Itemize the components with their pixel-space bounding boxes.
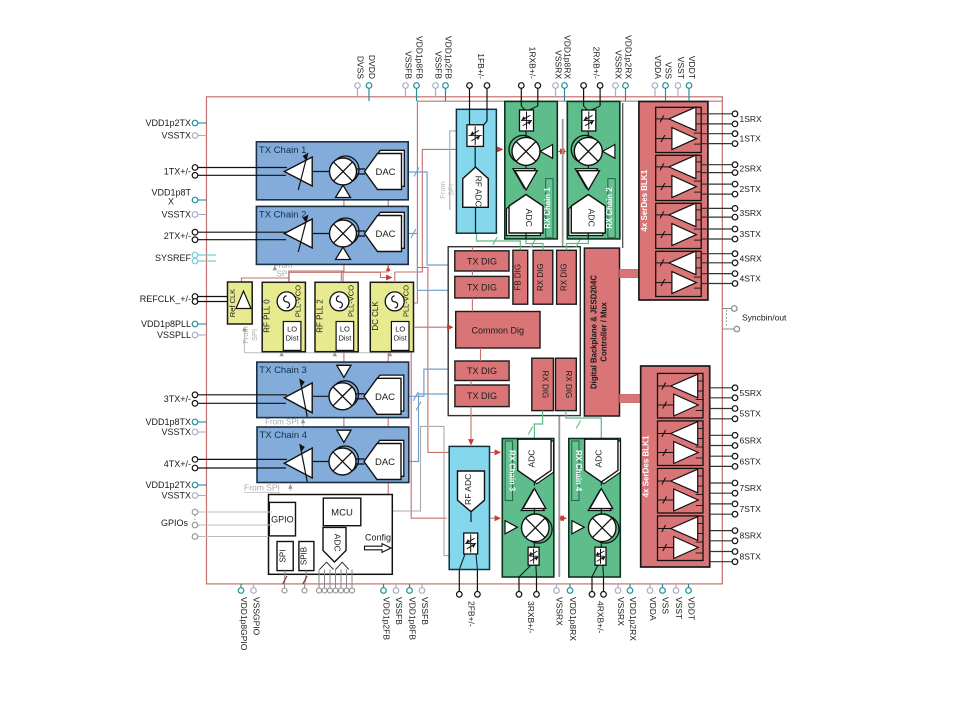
svg-text:1TX+/-: 1TX+/- (164, 167, 191, 177)
svg-text:3TX+/-: 3TX+/- (164, 394, 191, 404)
svg-text:TX Chain 4: TX Chain 4 (260, 430, 308, 441)
svg-text:DVDD: DVDD (367, 55, 377, 79)
svg-text:X: X (168, 197, 174, 207)
svg-text:VDD1p2FB: VDD1p2FB (382, 597, 392, 640)
svg-text:VDD1p8RX: VDD1p8RX (563, 35, 573, 79)
svg-text:3RXB+/-: 3RXB+/- (526, 601, 536, 634)
svg-text:ADC: ADC (586, 209, 596, 227)
svg-text:VSS: VSS (664, 62, 674, 79)
svg-text:RF PLL 0: RF PLL 0 (263, 299, 272, 333)
svg-text:RX DIG: RX DIG (560, 263, 569, 291)
svg-text:VSST: VSST (676, 57, 686, 79)
svg-text:4SRX: 4SRX (740, 253, 763, 263)
svg-text:Syncbin/out: Syncbin/out (742, 313, 787, 323)
svg-text:TX Chain 1: TX Chain 1 (259, 145, 307, 156)
svg-text:5STX: 5STX (740, 409, 762, 419)
svg-text:Config: Config (365, 533, 391, 543)
svg-text:VDD1p8TX: VDD1p8TX (145, 417, 191, 427)
svg-text:DC CLK: DC CLK (371, 301, 380, 331)
svg-text:VSSFB: VSSFB (434, 51, 444, 79)
svg-text:VSS: VSS (661, 597, 671, 614)
svg-text:VDD1p2TX: VDD1p2TX (145, 480, 191, 490)
svg-text:RX DIG: RX DIG (564, 371, 573, 399)
svg-text:SPI: SPI (278, 550, 287, 563)
svg-text:3STX: 3STX (740, 229, 762, 239)
svg-text:VDD1p2TX: VDD1p2TX (145, 118, 191, 128)
svg-text:4RXB+/-: 4RXB+/- (596, 601, 606, 634)
svg-text:VDDA: VDDA (653, 55, 663, 79)
svg-text:TX DIG: TX DIG (467, 366, 497, 376)
svg-text:4STX: 4STX (740, 274, 762, 284)
svg-text:Common Dig: Common Dig (472, 326, 525, 336)
svg-text:LO: LO (340, 325, 350, 334)
svg-text:8STX: 8STX (740, 552, 762, 562)
svg-text:From SPI: From SPI (265, 418, 299, 427)
svg-text:Dist: Dist (286, 334, 300, 343)
svg-text:PLL-VCO: PLL-VCO (402, 285, 411, 317)
svg-text:VSSRX: VSSRX (555, 597, 565, 626)
svg-text:VDDT: VDDT (687, 597, 697, 620)
svg-text:PLL-VCO: PLL-VCO (294, 285, 303, 317)
svg-text:LO: LO (395, 325, 405, 334)
svg-text:From SPI: From SPI (244, 483, 280, 493)
svg-text:FB DIG: FB DIG (514, 264, 523, 291)
svg-text:Controller / Mux: Controller / Mux (600, 302, 609, 362)
svg-text:REFCLK_+/-: REFCLK_+/- (140, 294, 191, 304)
svg-text:2SRX: 2SRX (740, 164, 763, 174)
svg-text:4x SerDes BLK1: 4x SerDes BLK1 (640, 169, 649, 231)
svg-text:SPI: SPI (447, 184, 456, 196)
svg-text:VDD1p2RX: VDD1p2RX (624, 35, 634, 79)
svg-text:VDDA: VDDA (648, 597, 658, 621)
svg-text:1FB+/-: 1FB+/- (476, 53, 486, 79)
svg-text:2RXB+/-: 2RXB+/- (592, 47, 602, 80)
svg-text:SPI: SPI (277, 270, 290, 279)
svg-text:VDD1p2RX: VDD1p2RX (628, 597, 638, 641)
svg-text:GPIOs: GPIOs (161, 518, 189, 528)
svg-text:SYSREF: SYSREF (155, 253, 192, 263)
svg-text:RF PLL 2: RF PLL 2 (316, 299, 325, 333)
svg-text:4x SerDes BLK1: 4x SerDes BLK1 (642, 435, 651, 497)
svg-text:DVSS: DVSS (356, 56, 366, 79)
svg-text:VSSTX: VSSTX (161, 491, 191, 501)
svg-text:VDD1p8FB: VDD1p8FB (415, 36, 425, 79)
svg-text:1STX: 1STX (740, 134, 762, 144)
svg-text:SPI: SPI (250, 329, 259, 341)
svg-text:PLL-VCO: PLL-VCO (346, 285, 355, 317)
svg-text:6STX: 6STX (740, 456, 762, 466)
svg-text:VSSRX: VSSRX (616, 597, 626, 626)
svg-text:6SRX: 6SRX (740, 435, 763, 445)
svg-text:TX DIG: TX DIG (467, 257, 497, 267)
svg-text:DAC: DAC (375, 392, 395, 403)
svg-text:RX Chain 1: RX Chain 1 (543, 187, 552, 229)
svg-text:8SRX: 8SRX (740, 531, 763, 541)
svg-text:VDD1p8GPIO: VDD1p8GPIO (239, 597, 249, 651)
svg-text:ADC: ADC (333, 534, 343, 552)
svg-text:RX DIG: RX DIG (541, 371, 550, 399)
svg-text:RX DIG: RX DIG (536, 263, 545, 291)
svg-text:2STX: 2STX (740, 184, 762, 194)
svg-text:VSSTX: VSSTX (161, 131, 191, 141)
svg-text:Digital Backplane & JESD204C: Digital Backplane & JESD204C (590, 275, 599, 389)
svg-text:ADC: ADC (524, 209, 534, 227)
svg-text:VSST: VSST (674, 597, 684, 619)
svg-text:2FB+/-: 2FB+/- (467, 601, 477, 627)
svg-text:VSSFB: VSSFB (404, 51, 414, 79)
svg-text:VDD1p8RX: VDD1p8RX (568, 597, 578, 641)
svg-text:DAC: DAC (375, 229, 395, 240)
svg-text:TX DIG: TX DIG (467, 391, 497, 401)
svg-text:Dist: Dist (338, 334, 352, 343)
svg-text:VSSTX: VSSTX (161, 427, 191, 437)
svg-text:VDD1p8PLL: VDD1p8PLL (141, 319, 191, 329)
svg-text:VDD1p2FB: VDD1p2FB (444, 36, 454, 79)
svg-text:TX DIG: TX DIG (467, 283, 497, 293)
svg-text:LO: LO (287, 325, 297, 334)
svg-text:RF ADC: RF ADC (474, 176, 484, 207)
svg-text:VDD1p8FB: VDD1p8FB (408, 597, 418, 640)
svg-text:DAC: DAC (375, 457, 395, 468)
svg-text:5SRX: 5SRX (740, 388, 763, 398)
svg-text:1SRX: 1SRX (740, 114, 763, 124)
svg-text:1RXB+/-: 1RXB+/- (528, 47, 538, 80)
svg-text:4TX+/-: 4TX+/- (164, 459, 191, 469)
svg-text:RF ADC: RF ADC (463, 474, 473, 505)
svg-text:RX Chain 4: RX Chain 4 (574, 450, 583, 492)
svg-text:RX Chain 3: RX Chain 3 (507, 450, 516, 492)
svg-text:3SRX: 3SRX (740, 208, 763, 218)
svg-text:VSSRX: VSSRX (554, 50, 564, 79)
svg-text:2TX+/-: 2TX+/- (164, 231, 191, 241)
svg-text:VSSFB: VSSFB (394, 597, 404, 625)
svg-text:ADC: ADC (526, 450, 536, 468)
svg-text:VDDT: VDDT (687, 56, 697, 79)
svg-text:Dist: Dist (394, 334, 408, 343)
svg-text:Ref CLK: Ref CLK (228, 289, 237, 317)
svg-text:7SRX: 7SRX (740, 483, 763, 493)
svg-text:TX Chain 3: TX Chain 3 (259, 365, 307, 376)
svg-text:VSSTX: VSSTX (161, 210, 191, 220)
svg-text:ADC: ADC (593, 450, 603, 468)
svg-text:MCU: MCU (331, 508, 353, 519)
svg-text:TX Chain 2: TX Chain 2 (259, 209, 307, 220)
svg-text:VSSPLL: VSSPLL (157, 330, 191, 340)
svg-text:VSSFB: VSSFB (420, 597, 430, 625)
svg-text:DAC: DAC (375, 167, 395, 178)
svg-text:VSSGPIO: VSSGPIO (252, 597, 262, 636)
svg-text:SPIB: SPIB (300, 547, 309, 565)
svg-text:GPIO: GPIO (271, 515, 294, 525)
svg-text:VSSRX: VSSRX (614, 50, 624, 79)
svg-text:7STX: 7STX (740, 504, 762, 514)
svg-text:RX Chain 2: RX Chain 2 (605, 187, 614, 229)
